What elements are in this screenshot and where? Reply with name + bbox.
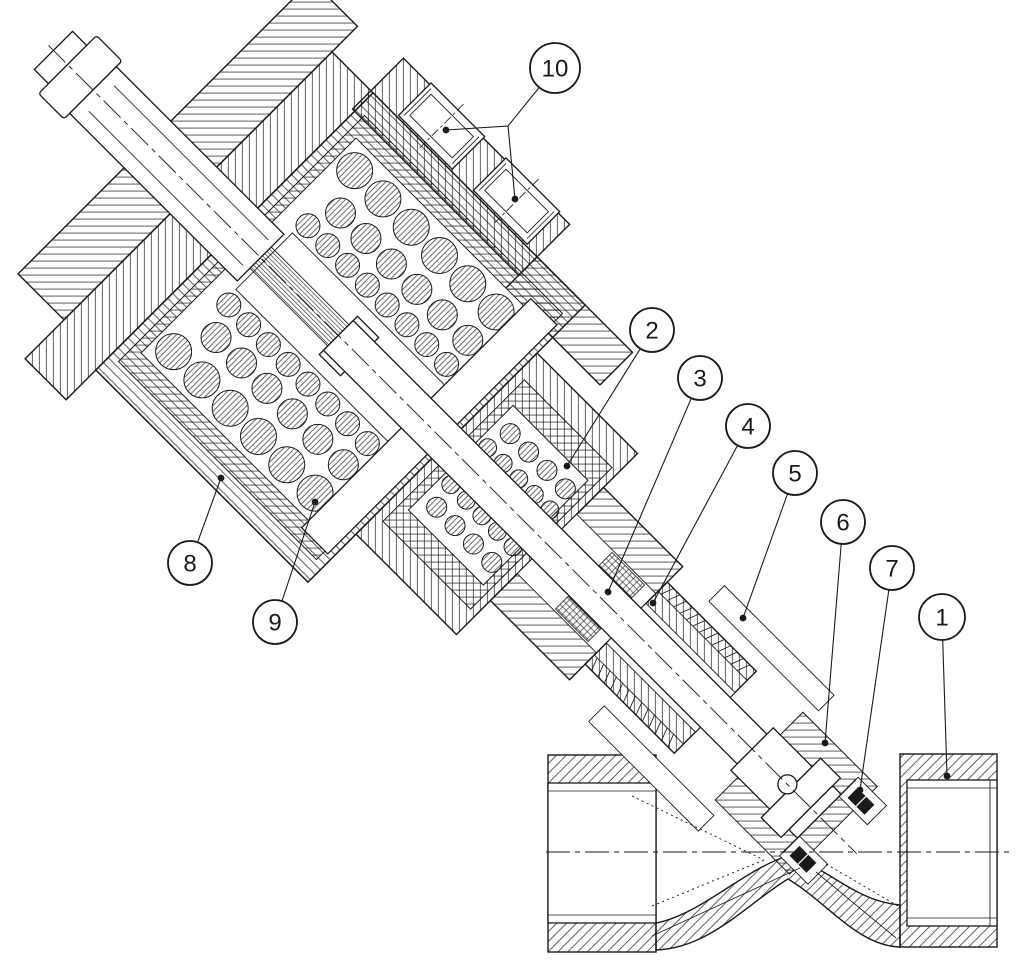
leader-dot-2: [564, 463, 571, 470]
leader-dot-3: [605, 589, 612, 596]
callout-1: 1: [919, 594, 965, 640]
balloon-number-6: 6: [836, 510, 849, 537]
callout-6: 6: [821, 500, 865, 544]
leader-line-5: [743, 473, 795, 618]
callout-5: 5: [773, 451, 817, 495]
leader-dot-6: [822, 740, 829, 747]
balloon-number-7: 7: [885, 556, 898, 583]
callout-2: 2: [630, 308, 674, 352]
leader-dot-1: [944, 773, 951, 780]
callout-10: 10: [530, 43, 580, 93]
callout-3: 3: [678, 356, 722, 400]
callout-7: 7: [870, 546, 914, 590]
balloon-number-4: 4: [741, 414, 754, 441]
valve-sectional-drawing: 12345678910: [0, 0, 1024, 968]
leader-dot-9: [312, 499, 319, 506]
drawing-sheet: 12345678910: [0, 0, 1024, 968]
leader-line-4: [653, 426, 748, 603]
leader-line-7: [860, 568, 892, 790]
callout-4: 4: [726, 404, 770, 448]
leader-dot-10: [443, 127, 450, 134]
balloon-number-9: 9: [268, 610, 281, 637]
body-bottom-arch: [656, 856, 900, 950]
leader-dot-7: [857, 787, 864, 794]
balloon-number-5: 5: [788, 461, 801, 488]
callout-9: 9: [253, 600, 297, 644]
balloon-number-2: 2: [645, 318, 658, 345]
left-port-bore: [548, 783, 656, 923]
balloon-number-10: 10: [542, 56, 569, 83]
callout-8: 8: [168, 541, 212, 585]
leader-line-6: [825, 522, 843, 743]
leader-dot-8: [218, 475, 225, 482]
balloon-number-8: 8: [183, 551, 196, 578]
leader-dot-5: [740, 615, 747, 622]
right-port-bore: [907, 780, 997, 926]
leader-dot-10: [512, 196, 519, 203]
balloon-number-1: 1: [935, 605, 948, 632]
flow-cone-line: [652, 868, 800, 936]
balloon-number-3: 3: [693, 366, 706, 393]
leader-dot-4: [650, 600, 657, 607]
